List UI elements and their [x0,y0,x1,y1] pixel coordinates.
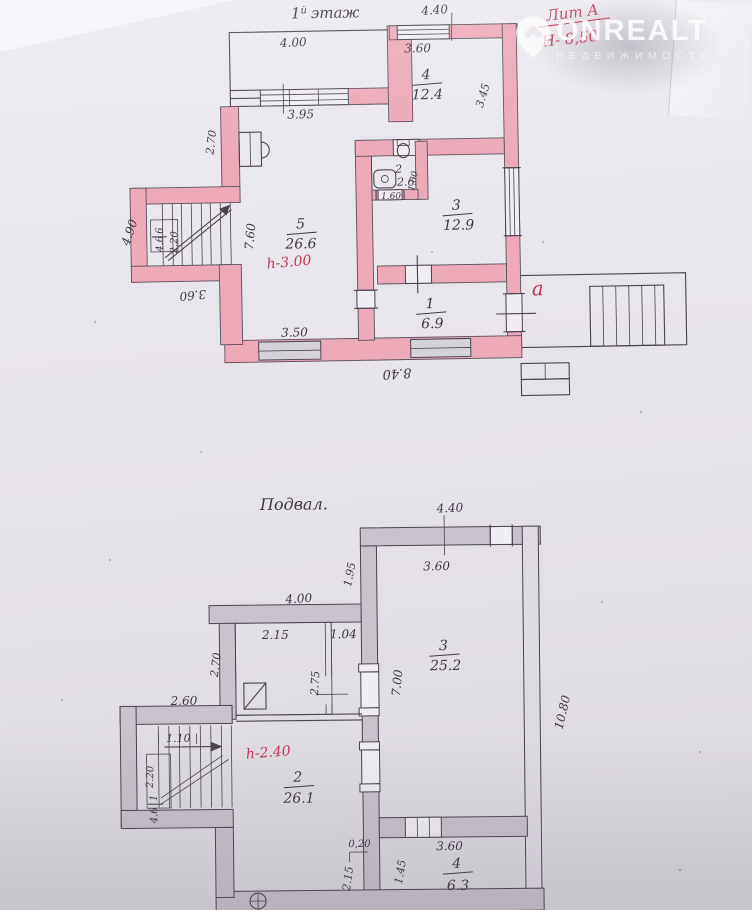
dim-bsmt-4-00: 4.00 [284,591,313,607]
room5-number: 5 [296,216,305,232]
bathtub-icon [374,170,396,188]
watermark-tagline: НЕДВИЖИМОСТЬ [556,50,713,62]
dim-veranda-3-95: 3.95 [287,107,314,121]
well-symbol-icon [250,893,266,909]
onrealt-logo-icon [516,16,550,58]
dim-bsmt-2-20: 2.20 [145,765,157,789]
watermark-brand: ONREALT [556,16,713,48]
stairs-number: 6 [155,227,166,234]
stairs-direction-arrow [210,741,222,751]
scan-specks [61,241,701,871]
basement-title: Подвал. [259,494,328,514]
floor1-title: 1йэтаж [291,3,360,22]
dim-veranda-2-70: 2.70 [203,129,219,156]
bsmt-room4-area: 6.3 [447,878,470,894]
stove-icon [239,132,270,167]
dim-bottom-3-50: 3.50 [281,325,308,339]
dim-bsmt-room4-3-60: 3.60 [436,839,463,853]
basement-walls [118,514,544,910]
dim-stairs-2-20: 2.20 [169,231,180,255]
bathroom-number: 2 [394,163,402,176]
dim-bsmt-2-60: 2.60 [170,694,198,708]
dim-bsmt-10-80: 10.80 [552,694,574,731]
dim-bath-1-60: 1.60 [381,192,401,202]
dim-bsmt-1-04: 1.04 [330,627,357,641]
dim-4-40: 4.40 [420,2,449,18]
first-floor-walls [127,9,688,403]
dim-bsmt-1-10: 1.10 [166,732,191,745]
dim-bsmt-2-15-v: 2.15 [340,866,356,893]
dim-stairs-3-60-flipped: 3.60 [178,287,206,303]
stairs-area: 4.6 [155,235,166,253]
room5-area: 26.6 [284,236,317,253]
furnace-icon [244,683,266,709]
room3-number: 3 [452,198,461,214]
dim-bsmt-2-15: 2.15 [261,628,289,642]
onrealt-watermark: ONREALT НЕДВИЖИМОСТЬ [516,16,752,62]
porch-letter-label: а [532,276,544,300]
dim-bsmt-7-00: 7.00 [389,669,405,697]
bsmt-room3-number: 3 [439,638,448,654]
dim-bsmt-0-20: 0,20 [348,839,371,850]
ceiling-height-label: h-3.00 [266,253,312,273]
bsmt-room2-number: 2 [292,770,302,786]
basement-plan: Подвал. 4.40 3.60 1.95 4.00 2.15 1.04 2.… [118,492,576,910]
dim-total-8-40-flipped: 8.40 [382,364,412,381]
scanned-floor-plan-page: 1йэтаж 4.40 Лит А Н- 8,50 4.00 3.95 2.70… [0,0,752,910]
dim-veranda-4-00: 4.00 [279,35,308,50]
room1-area: 6.9 [421,316,444,332]
dim-bsmt-1-95: 1.95 [341,561,359,588]
room3-area: 12.9 [443,217,475,234]
dim-room4-3-45: 3.45 [473,82,493,109]
bsmt-ceiling-height-label: h-2.40 [245,743,291,763]
room1-number: 1 [425,296,434,312]
stairs-up-arrow [219,205,230,216]
bsmt-room4-number: 4 [451,856,461,872]
dim-bsmt-2-75: 2.75 [308,670,322,696]
bsmt-room2-area: 26.1 [282,790,314,806]
dim-room5-7-60: 7.60 [242,222,258,250]
dim-bsmt-4-40: 4.40 [435,500,464,515]
bsmt-stairs-area: 4.6 [149,807,160,825]
room4-number: 4 [420,67,430,83]
dim-bsmt-3-60: 3.60 [423,559,450,573]
bsmt-room3-area: 25.2 [429,658,461,674]
room4-area: 12.4 [412,87,443,104]
bsmt-stairs-number: 1 [149,795,160,801]
watermark-text: ONREALT НЕДВИЖИМОСТЬ [556,16,713,62]
floor-plan-drawing: 1йэтаж 4.40 Лит А Н- 8,50 4.00 3.95 2.70… [0,0,752,910]
dim-bsmt-1-45: 1.45 [392,859,409,885]
dim-room4-3-60: 3.60 [404,41,431,55]
